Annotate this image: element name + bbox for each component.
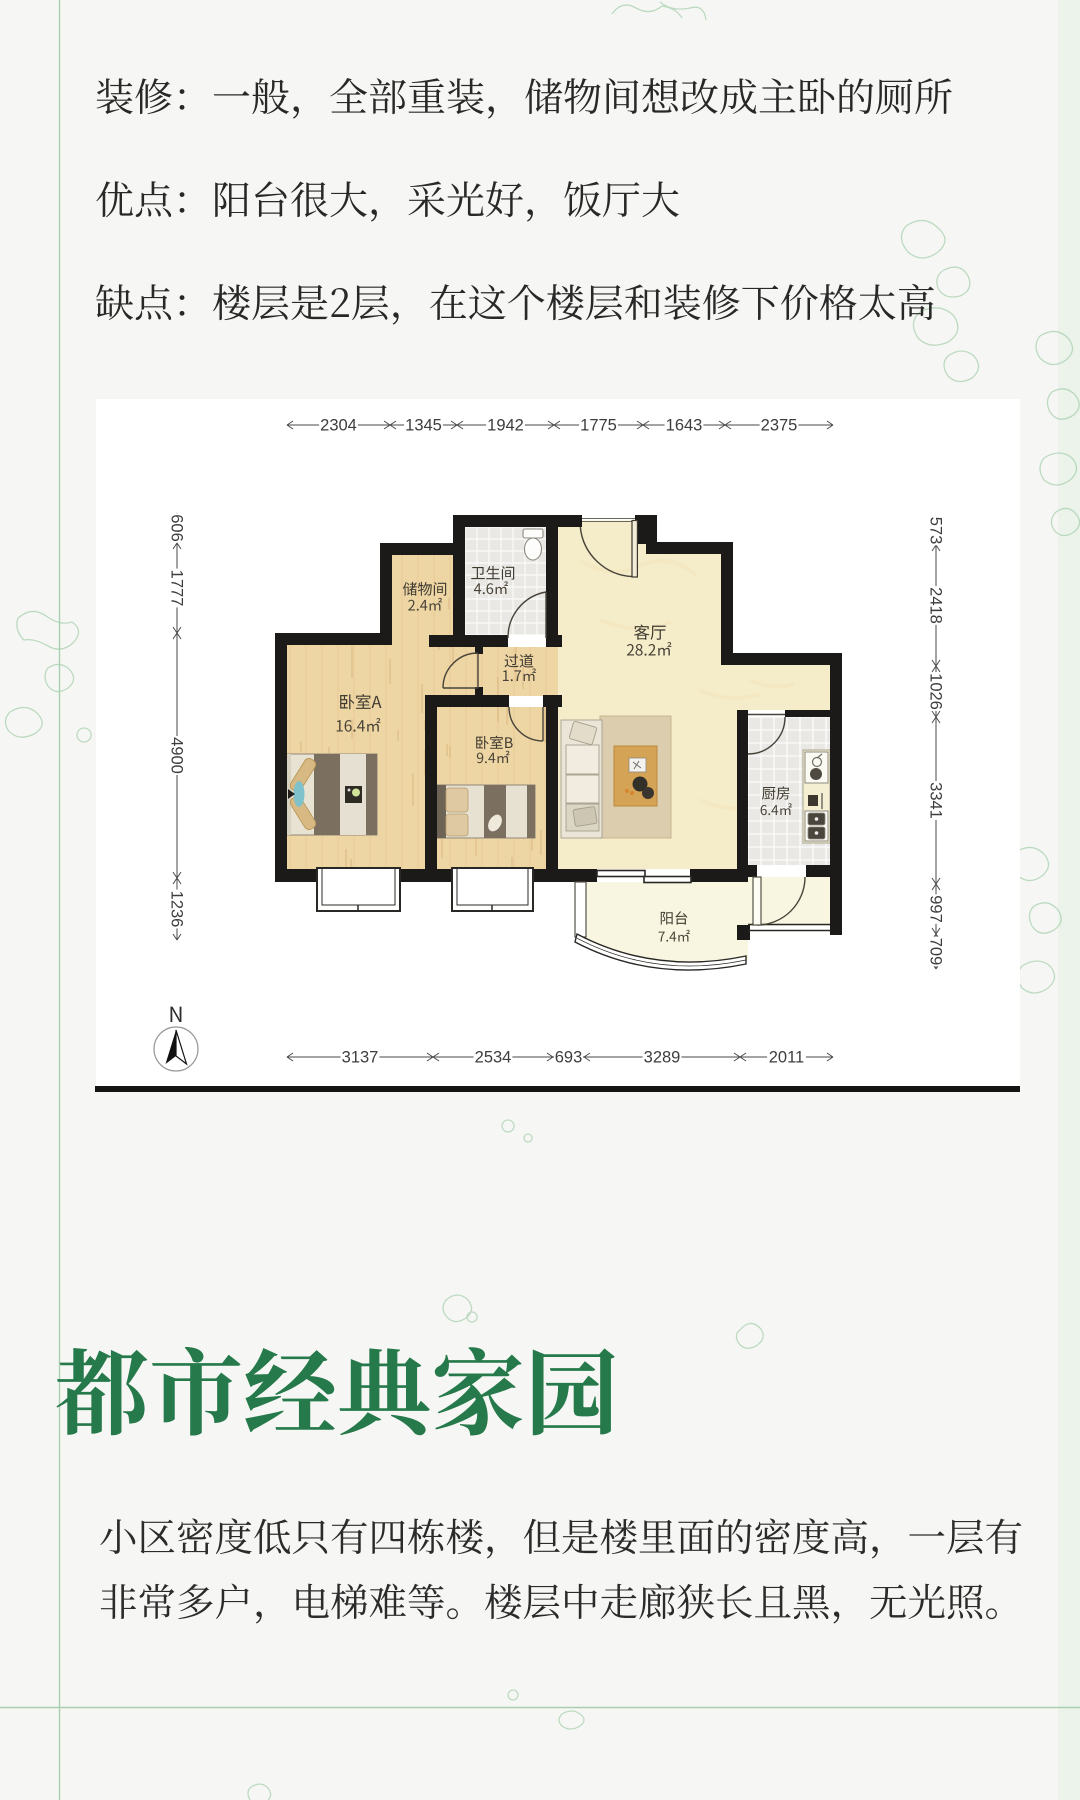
svg-text:7.4㎡: 7.4㎡ [658,926,691,946]
svg-text:卧室A: 卧室A [338,689,381,713]
svg-text:9.4㎡: 9.4㎡ [476,748,509,768]
svg-text:1345: 1345 [405,417,442,435]
svg-text:1643: 1643 [666,417,703,435]
svg-text:709: 709 [927,938,945,966]
svg-text:2.4㎡: 2.4㎡ [408,595,443,616]
svg-text:693: 693 [555,1049,583,1067]
svg-text:2418: 2418 [927,587,945,624]
svg-text:1026: 1026 [927,673,945,710]
svg-text:1236: 1236 [168,891,186,928]
svg-text:16.4㎡: 16.4㎡ [335,714,381,736]
svg-text:3289: 3289 [644,1049,681,1067]
svg-text:3137: 3137 [342,1049,379,1067]
svg-text:N: N [168,999,183,1029]
svg-text:997: 997 [927,895,945,923]
svg-text:573: 573 [927,517,945,545]
svg-text:1.7㎡: 1.7㎡ [502,665,537,686]
svg-text:2304: 2304 [320,417,357,435]
svg-text:2534: 2534 [475,1049,512,1067]
svg-text:2375: 2375 [761,417,798,435]
svg-text:4.6㎡: 4.6㎡ [474,578,509,599]
svg-text:606: 606 [168,514,186,542]
svg-text:6.4㎡: 6.4㎡ [760,799,793,819]
svg-text:28.2㎡: 28.2㎡ [626,638,672,660]
svg-text:3341: 3341 [927,782,945,819]
svg-text:1775: 1775 [580,417,617,435]
svg-text:4900: 4900 [168,737,186,774]
svg-text:1777: 1777 [168,570,186,607]
svg-text:2011: 2011 [769,1049,804,1067]
svg-text:1942: 1942 [487,417,524,435]
